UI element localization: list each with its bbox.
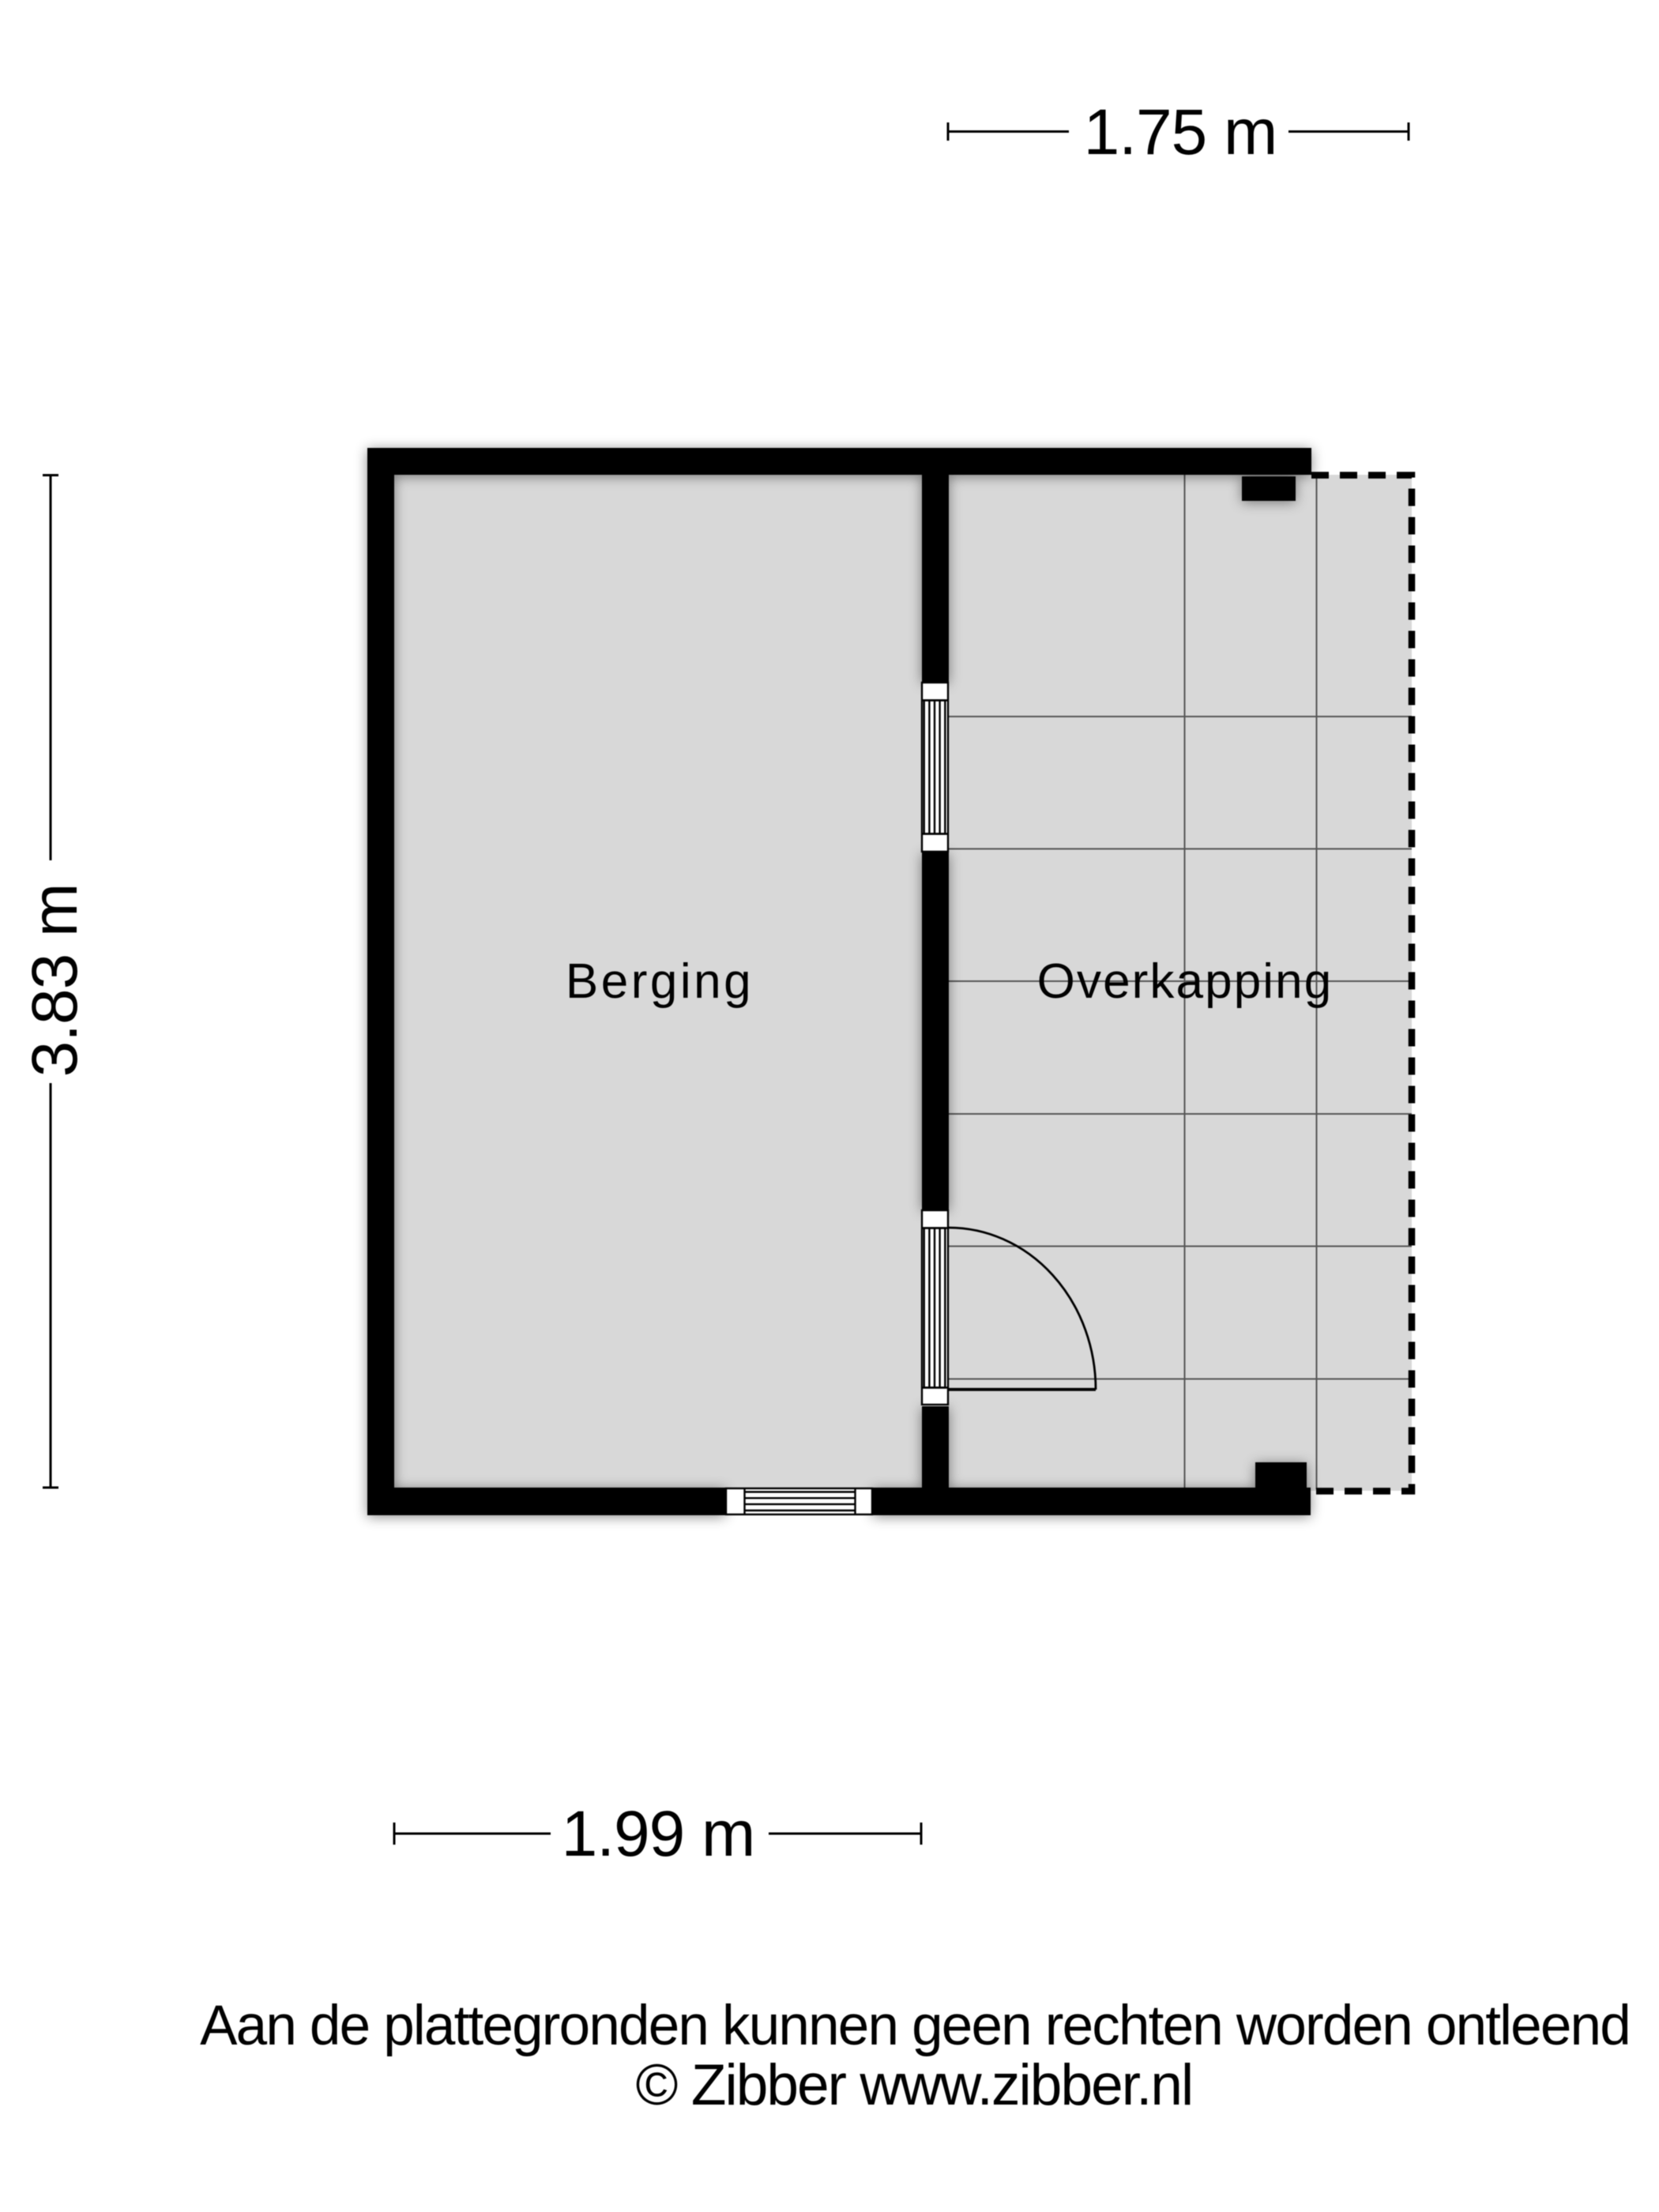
svg-text:Overkapping: Overkapping [1037,954,1334,1009]
svg-text:Aan de plattegronden kunnen ge: Aan de plattegronden kunnen geen rechten… [200,1995,1630,2057]
svg-text:1.75 m: 1.75 m [1084,96,1277,168]
svg-text:© Zibber www.zibber.nl: © Zibber www.zibber.nl [636,2053,1193,2117]
svg-text:1.99 m: 1.99 m [562,1798,755,1870]
svg-text:3.83 m: 3.83 m [19,884,91,1078]
svg-text:Berging: Berging [566,954,754,1009]
